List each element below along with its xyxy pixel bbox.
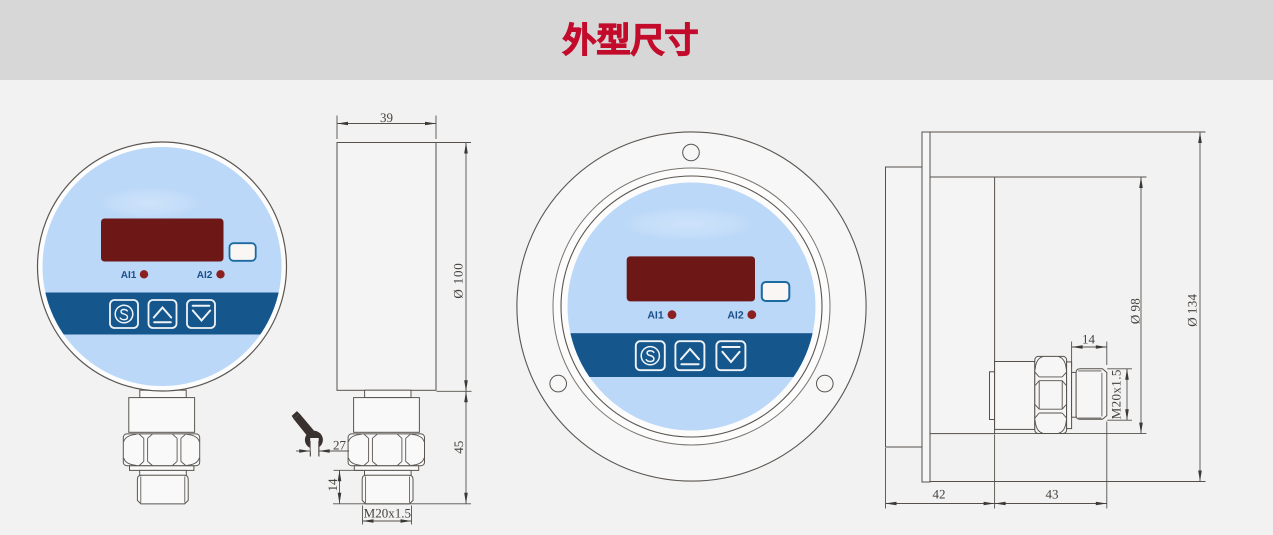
svg-text:AI1: AI1: [121, 270, 137, 281]
svg-text:Ø 98: Ø 98: [1128, 298, 1143, 324]
svg-text:14: 14: [325, 478, 340, 492]
svg-text:42: 42: [933, 487, 946, 502]
svg-text:Ø 100: Ø 100: [451, 262, 466, 298]
svg-text:M20x1.5: M20x1.5: [1109, 369, 1124, 419]
svg-text:45: 45: [451, 441, 466, 454]
svg-text:AI2: AI2: [197, 270, 213, 281]
svg-text:14: 14: [1082, 332, 1096, 347]
svg-text:43: 43: [1046, 487, 1059, 502]
svg-text:AI1: AI1: [647, 309, 664, 321]
svg-text:Ø 134: Ø 134: [1185, 294, 1200, 327]
svg-text:AI2: AI2: [727, 309, 744, 321]
svg-text:M20x1.5: M20x1.5: [364, 506, 411, 521]
svg-text:39: 39: [380, 110, 393, 125]
svg-text:27: 27: [333, 438, 347, 453]
